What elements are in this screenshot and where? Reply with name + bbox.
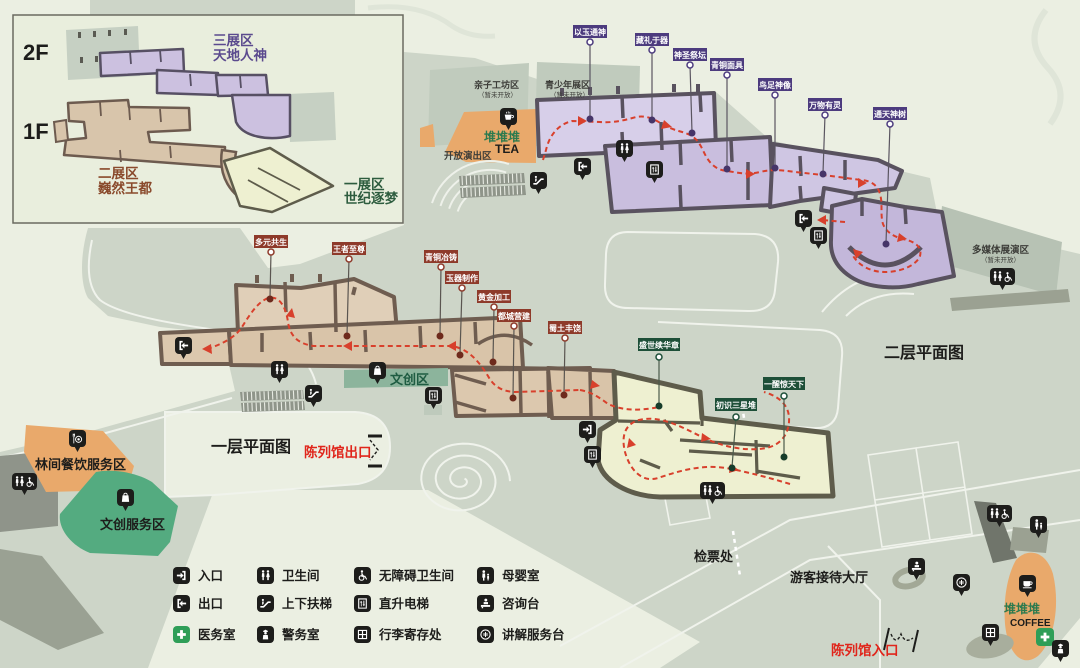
svg-text:咨询台: 咨询台 — [502, 596, 540, 611]
svg-text:游客接待大厅: 游客接待大厅 — [790, 570, 868, 585]
svg-text:开放演出区: 开放演出区 — [444, 150, 492, 162]
svg-text:讲解服务台: 讲解服务台 — [502, 627, 565, 642]
svg-text:无障碍卫生间: 无障碍卫生间 — [378, 568, 454, 583]
svg-text:都城营建: 都城营建 — [497, 311, 531, 321]
svg-text:初识三星堆: 初识三星堆 — [716, 400, 756, 410]
svg-text:黄金加工: 黄金加工 — [478, 292, 510, 302]
svg-text:COFFEE: COFFEE — [1010, 618, 1051, 629]
svg-text:一层平面图: 一层平面图 — [211, 438, 291, 456]
svg-text:堆堆堆: 堆堆堆 — [1004, 601, 1040, 616]
svg-text:青铜冶铸: 青铜冶铸 — [425, 252, 457, 262]
svg-text:出口: 出口 — [198, 596, 223, 611]
svg-text:青铜面具: 青铜面具 — [711, 60, 743, 70]
svg-text:盛世续华章: 盛世续华章 — [639, 340, 679, 350]
svg-text:检票处: 检票处 — [694, 549, 734, 564]
svg-text:多媒体展演区: 多媒体展演区 — [972, 244, 1030, 256]
svg-text:多元共生: 多元共生 — [255, 237, 287, 247]
svg-text:卫生间: 卫生间 — [282, 568, 320, 583]
svg-text:警务室: 警务室 — [281, 627, 320, 642]
svg-text:二层平面图: 二层平面图 — [884, 344, 964, 362]
svg-text:直升电梯: 直升电梯 — [379, 596, 430, 611]
svg-text:2F: 2F — [23, 40, 49, 65]
svg-text:林间餐饮服务区: 林间餐饮服务区 — [35, 457, 126, 472]
svg-text:玉器制作: 玉器制作 — [446, 273, 478, 283]
svg-text:天地人神: 天地人神 — [213, 47, 267, 63]
svg-text:蜀土丰饶: 蜀土丰饶 — [549, 323, 581, 333]
svg-text:万物有灵: 万物有灵 — [808, 100, 842, 110]
svg-text:青少年展区: 青少年展区 — [545, 79, 590, 90]
svg-text:神圣祭坛: 神圣祭坛 — [674, 50, 706, 60]
svg-text:陈列馆出口: 陈列馆出口 — [304, 444, 372, 460]
svg-text:母婴室: 母婴室 — [502, 568, 540, 583]
svg-text:世纪逐梦: 世纪逐梦 — [344, 190, 398, 206]
svg-text:文创服务区: 文创服务区 — [100, 517, 165, 532]
svg-text:一展区: 一展区 — [344, 177, 385, 192]
svg-text:1F: 1F — [23, 119, 49, 144]
svg-text:以玉通神: 以玉通神 — [574, 27, 606, 37]
svg-text:藏礼于器: 藏礼于器 — [636, 35, 669, 45]
svg-text:行李寄存处: 行李寄存处 — [378, 627, 442, 642]
svg-text:王者至尊: 王者至尊 — [333, 244, 365, 254]
svg-text:鸟足神像: 鸟足神像 — [759, 80, 792, 90]
svg-text:文创区: 文创区 — [390, 372, 429, 387]
svg-text:（暂未开放）: （暂未开放） — [478, 90, 517, 99]
svg-text:TEA: TEA — [495, 142, 519, 156]
svg-text:巍然王都: 巍然王都 — [98, 180, 152, 196]
svg-text:通天神树: 通天神树 — [874, 109, 906, 119]
svg-text:亲子工坊区: 亲子工坊区 — [474, 79, 519, 90]
svg-text:医务室: 医务室 — [198, 627, 236, 642]
svg-text:陈列馆入口: 陈列馆入口 — [831, 642, 899, 658]
svg-text:二展区: 二展区 — [98, 166, 139, 181]
svg-text:三展区: 三展区 — [213, 33, 254, 48]
svg-text:入口: 入口 — [198, 569, 223, 583]
svg-text:（暂未开放）: （暂未开放） — [981, 255, 1020, 264]
svg-text:上下扶梯: 上下扶梯 — [282, 596, 333, 611]
svg-text:一醒惊天下: 一醒惊天下 — [764, 379, 804, 389]
svg-text:（暂未开放）: （暂未开放） — [550, 90, 589, 99]
